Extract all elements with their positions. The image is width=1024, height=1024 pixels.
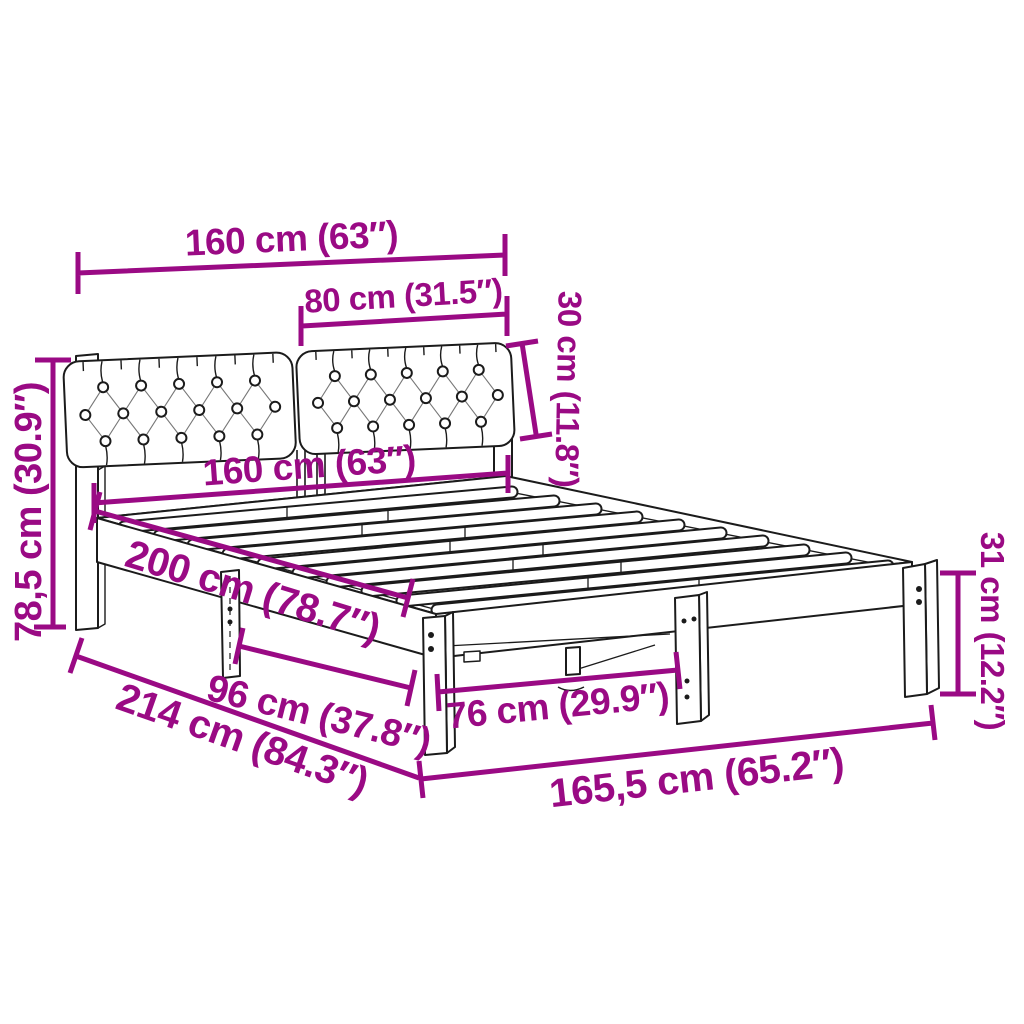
- diagram-canvas: 160 cm (63″) 80 cm (31.5″) 30 cm (11.8″)…: [0, 0, 1024, 1024]
- dim-frame-width-label: 165,5 cm (65.2″): [547, 740, 846, 816]
- foot-rail-tab: [464, 651, 480, 662]
- bed-dimension-diagram: 160 cm (63″) 80 cm (31.5″) 30 cm (11.8″)…: [0, 0, 1024, 1024]
- center-foot-leg: [675, 592, 709, 724]
- dim-cushion-width-label: 80 cm (31.5″): [303, 271, 503, 319]
- dim-headboard-width-label: 160 cm (63″): [184, 213, 399, 263]
- dim-frame-height: 31 cm (12.2″): [940, 532, 1011, 730]
- dim-headboard-height-label: 78,5 cm (30.9″): [8, 382, 50, 642]
- dim-cushion-height: 30 cm (11.8″): [506, 291, 589, 488]
- dim-foot-leg-spacing: 76 cm (29.9″): [437, 652, 680, 737]
- foot-right-leg: [903, 560, 939, 697]
- center-support-foot: [566, 647, 580, 675]
- dim-headboard-height: 78,5 cm (30.9″): [8, 360, 71, 642]
- dim-cushion-height-label: 30 cm (11.8″): [548, 291, 588, 488]
- dim-frame-height-label: 31 cm (12.2″): [974, 532, 1011, 730]
- dim-cushion-width: 80 cm (31.5″): [301, 271, 507, 346]
- dim-line: [940, 573, 976, 694]
- dim-foot-leg-spacing-label: 76 cm (29.9″): [445, 674, 671, 736]
